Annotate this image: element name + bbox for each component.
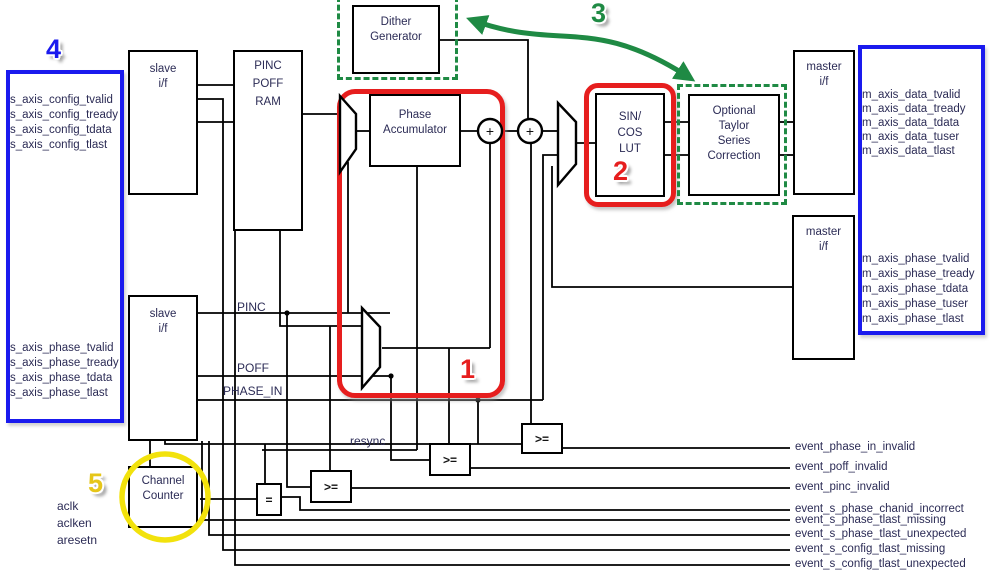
port-list-phase-in: s_axis_phase_tvalids_axis_phase_treadys_…	[10, 341, 119, 401]
dds-block-diagram: slave i/f slave i/f PINC POFF RAM Dither…	[0, 0, 990, 575]
block-sin-cos-lut: SIN/ COS LUT	[595, 93, 665, 197]
port-label: s_axis_phase_tlast	[10, 386, 119, 401]
port-label: s_axis_config_tdata	[10, 123, 118, 138]
comparator-gte-phase-in: >=	[521, 423, 563, 454]
adder2-plus-glyph: +	[526, 123, 534, 139]
port-label: s_axis_config_tlast	[10, 138, 118, 153]
block-taylor-correction: Optional Taylor Series Correction	[688, 94, 780, 196]
adder-dither	[518, 119, 542, 143]
callout-2: 2	[613, 156, 628, 187]
wire-label-resync: resync	[350, 434, 385, 448]
callout-4: 4	[46, 34, 61, 65]
port-label: s_axis_phase_tvalid	[10, 341, 119, 356]
port-label: m_axis_data_tuser	[862, 130, 966, 144]
block-phase-accumulator: Phase Accumulator	[369, 94, 461, 167]
green-arrow-dither-to-taylor	[472, 20, 690, 78]
port-label: s_axis_phase_tdata	[10, 371, 119, 386]
mux-lut-input	[558, 103, 576, 185]
comparator-gte-pinc: >=	[310, 470, 352, 503]
port-list-config-in: s_axis_config_tvalids_axis_config_tready…	[10, 93, 118, 153]
port-label: s_axis_config_tvalid	[10, 93, 118, 108]
event-label-s-config-tlast-missing: event_s_config_tlast_missing	[795, 543, 945, 555]
port-label: m_axis_data_tdata	[862, 116, 966, 130]
clock-label: aclken	[57, 515, 97, 532]
wire-label-pinc: PINC	[237, 300, 266, 314]
block-master-if-data: master i/f	[793, 50, 855, 195]
clock-label: aclk	[57, 498, 97, 515]
event-label-poff-invalid: event_poff_invalid	[795, 461, 888, 473]
port-label: m_axis_data_tready	[862, 102, 966, 116]
callout-3: 3	[591, 0, 606, 29]
port-label: m_axis_phase_tdata	[862, 282, 975, 297]
port-label: m_axis_phase_tvalid	[862, 252, 975, 267]
wire-label-phase-in: PHASE_IN	[223, 384, 282, 398]
port-label: m_axis_phase_tready	[862, 267, 975, 282]
clock-signal-list: aclkaclkenaresetn	[57, 498, 97, 549]
callout-5: 5	[88, 468, 103, 499]
block-channel-counter: Channel Counter	[128, 466, 198, 528]
clock-label: aresetn	[57, 532, 97, 549]
block-dither-generator: Dither Generator	[352, 5, 440, 74]
block-pinc-poff-ram: PINC POFF RAM	[233, 50, 303, 231]
port-label: s_axis_config_tready	[10, 108, 118, 123]
callout-1: 1	[460, 354, 475, 385]
event-label-s-config-tlast-unexpected: event_s_config_tlast_unexpected	[795, 558, 966, 570]
port-label: m_axis_data_tlast	[862, 144, 966, 158]
comparator-gte-poff: >=	[429, 443, 471, 476]
block-slave-if-config: slave i/f	[128, 50, 198, 195]
port-list-phase-out: m_axis_phase_tvalidm_axis_phase_treadym_…	[862, 252, 975, 327]
port-label: m_axis_data_tvalid	[862, 88, 966, 102]
port-label: s_axis_phase_tready	[10, 356, 119, 371]
event-label-phase-in-invalid: event_phase_in_invalid	[795, 441, 915, 453]
wire-label-poff: POFF	[237, 361, 269, 375]
event-label-s-phase-tlast-missing: event_s_phase_tlast_missing	[795, 514, 946, 526]
port-label: m_axis_phase_tuser	[862, 297, 975, 312]
comparator-equals: =	[256, 483, 282, 516]
event-label-s-phase-tlast-unexpected: event_s_phase_tlast_unexpected	[795, 528, 966, 540]
port-list-data-out: m_axis_data_tvalidm_axis_data_treadym_ax…	[862, 88, 966, 158]
block-slave-if-phase: slave i/f	[128, 295, 198, 441]
port-label: m_axis_phase_tlast	[862, 312, 975, 327]
block-master-if-phase: master i/f	[792, 215, 855, 360]
event-label-pinc-invalid: event_pinc_invalid	[795, 481, 890, 493]
